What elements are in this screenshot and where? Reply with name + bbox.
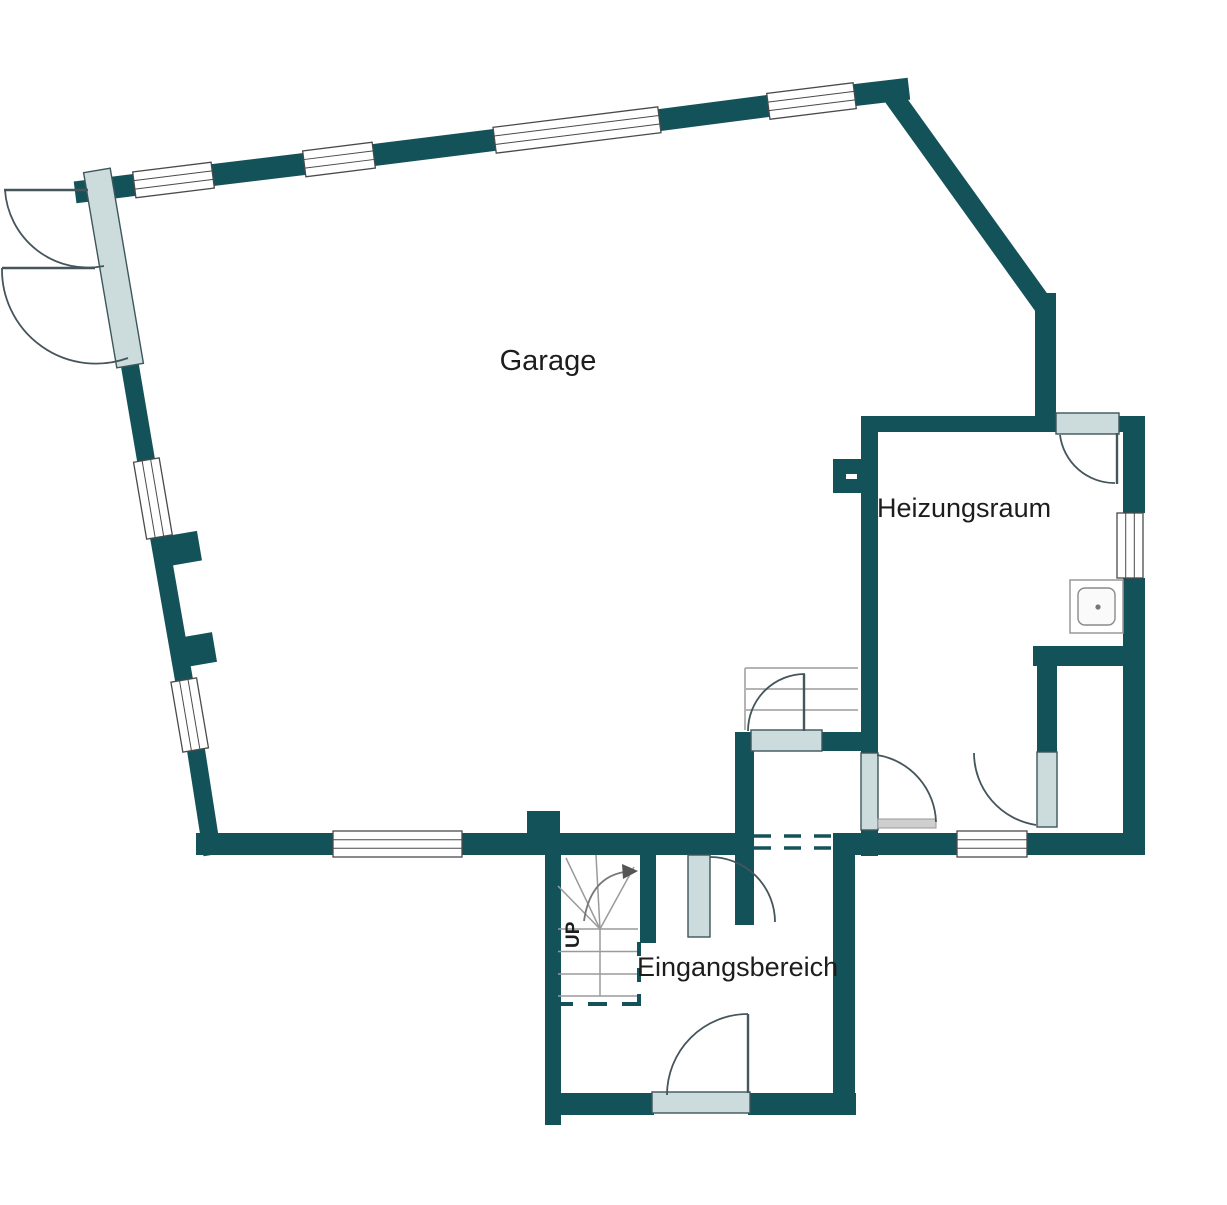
floor-plan-page: Garage Heizungsraum Eingangsbereich UP (0, 0, 1227, 1200)
window (1117, 513, 1143, 578)
stair-direction-arrow (622, 864, 638, 879)
garage-left-wall (130, 366, 217, 846)
sink-drain (1095, 604, 1100, 609)
vestibule-left-wall (735, 732, 754, 925)
garage-diagonal-wall (893, 96, 1041, 302)
door-leaf (688, 855, 710, 937)
garage-double-door (2, 168, 143, 368)
door-leaf (861, 753, 878, 830)
wall-pier (181, 632, 217, 667)
main-entrance-door (652, 1014, 750, 1113)
window (767, 83, 857, 120)
entrance-inner-door (688, 855, 775, 937)
door-leaf (1056, 413, 1119, 434)
room-label-entrance-area: Eingangsbereich (637, 952, 838, 982)
door-swing-arc (974, 753, 1036, 825)
door-leaf (1037, 752, 1057, 827)
heating-room-left-wall (861, 830, 878, 856)
window (134, 458, 173, 539)
exterior-walls (86, 90, 1145, 1125)
window (171, 678, 209, 752)
window (303, 142, 376, 176)
vestibule-top-wall (822, 732, 861, 751)
floor-plan-drawing: Garage Heizungsraum Eingangsbereich UP (0, 0, 1227, 1200)
door-swing-arc (877, 755, 936, 822)
room-label-garage: Garage (500, 345, 597, 377)
garage-right-wall (1035, 293, 1056, 432)
wall-pier (164, 531, 202, 566)
wall-pier (527, 811, 560, 833)
stair-room-wall (640, 848, 656, 943)
window (333, 831, 462, 857)
window (493, 107, 661, 153)
door-threshold (878, 819, 936, 828)
garage-bottom-wall (196, 811, 753, 855)
heating-room-top-wall (861, 416, 1055, 432)
heating-room-top-wall (1119, 416, 1145, 432)
windows (133, 83, 1143, 857)
room-label-heating-room: Heizungsraum (877, 493, 1051, 523)
window (133, 162, 215, 198)
sink-fixture (1070, 580, 1123, 633)
door-sill (751, 730, 822, 751)
window (957, 831, 1027, 857)
room-labels: Garage Heizungsraum Eingangsbereich UP (500, 345, 1051, 982)
heating-room-top-door (1056, 413, 1119, 484)
door-sill (652, 1092, 750, 1113)
closet-left-wall (1037, 646, 1057, 752)
door-swing-arc (667, 1014, 748, 1095)
chimney-block (833, 459, 862, 493)
heating-room-side-door (861, 753, 936, 830)
steps (745, 668, 858, 730)
door-swing-arc (748, 674, 805, 731)
door-swing-arc (1060, 435, 1115, 483)
heating-room-left-wall (861, 416, 878, 753)
closet-door (974, 752, 1057, 827)
right-outer-wall (1123, 416, 1145, 855)
entrance-left-wall (545, 838, 561, 1125)
wall-opening-dashed (754, 836, 832, 848)
stair-up-label: UP (563, 921, 584, 948)
